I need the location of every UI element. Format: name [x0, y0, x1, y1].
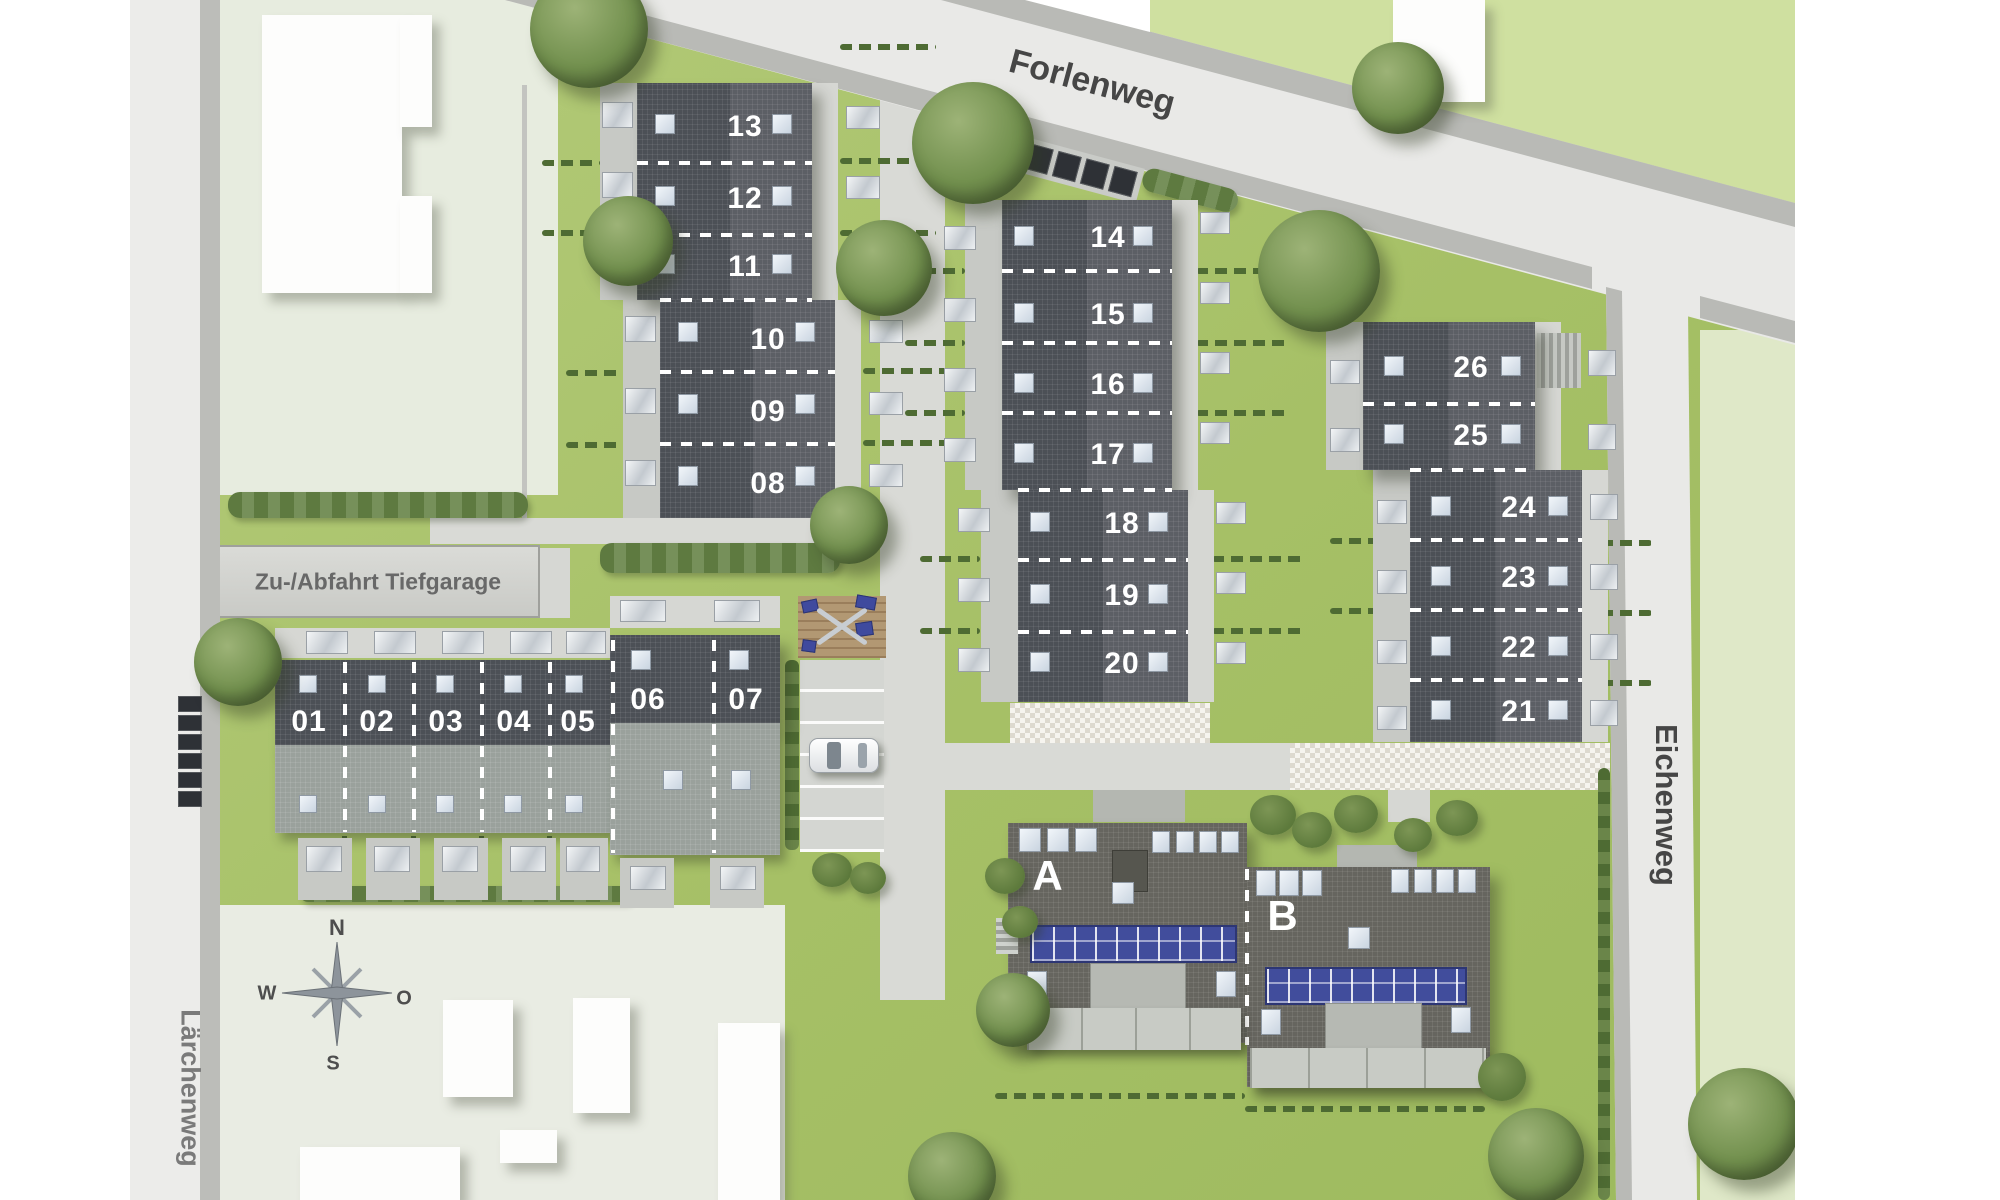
existing-building-nw-wing: [400, 196, 432, 293]
existing-building-sw: [573, 998, 630, 1113]
bush: [812, 853, 852, 887]
paved-path-north-of-road: [1010, 703, 1210, 743]
house-number: 11: [728, 250, 762, 284]
bush: [1334, 795, 1378, 833]
solar-panel-array-a: [1030, 925, 1237, 963]
skylight: [772, 254, 792, 274]
house-number: 02: [359, 705, 394, 739]
house-number: 12: [727, 182, 762, 216]
skylight: [631, 650, 651, 670]
entrance-canopy-a: [1093, 790, 1185, 822]
hedge-row: [920, 628, 980, 634]
site-plan-canvas: 13 12 11 10 09 08 14 15 16 17 18 19 20: [0, 0, 2000, 1200]
unit-divider: [660, 370, 835, 374]
terrace: [510, 846, 546, 872]
skylight: [1014, 303, 1034, 323]
terrace: [566, 846, 600, 872]
skylight: [1548, 496, 1568, 516]
house-number: 22: [1501, 631, 1536, 665]
unit-divider: [1018, 558, 1188, 562]
entrance-pad: [1590, 564, 1618, 590]
entrance-pad: [1588, 350, 1616, 376]
car-rear-window: [858, 743, 867, 768]
balcony-strip-a: [1027, 1008, 1241, 1050]
skylight: [436, 795, 454, 813]
entrance-pad: [1200, 212, 1230, 234]
entry-path-building-b: [1388, 790, 1430, 822]
unit-divider: [412, 662, 416, 832]
unit-divider: [1018, 488, 1172, 492]
entrance-pad: [714, 600, 760, 622]
parked-car: [809, 738, 879, 773]
hedge-row-south-a: [995, 1093, 1245, 1099]
skylight: [655, 114, 675, 134]
skylight: [1019, 828, 1041, 852]
terrace: [1330, 360, 1360, 384]
waste-bin: [178, 715, 202, 731]
skylight: [1133, 226, 1153, 246]
terrace: [944, 438, 976, 462]
house-number: 15: [1090, 298, 1125, 332]
entrance-pad: [510, 631, 552, 654]
skylight: [1075, 828, 1097, 852]
hedge-mid: [600, 543, 840, 573]
terrace: [630, 866, 666, 890]
skylight: [1148, 584, 1168, 604]
waste-bin: [178, 791, 202, 807]
skylight: [1030, 584, 1050, 604]
unit-divider: [548, 662, 552, 832]
skylight: [1451, 1007, 1471, 1033]
unit-divider: [1410, 678, 1582, 682]
skylight: [1548, 700, 1568, 720]
hedge-row: [566, 442, 623, 448]
existing-building-nw: [262, 15, 402, 293]
car-windshield: [827, 742, 841, 769]
skylight: [299, 795, 317, 813]
building-divider: [1245, 869, 1249, 1045]
unit-divider: [1002, 341, 1172, 345]
house-number: 25: [1453, 419, 1488, 453]
unit-divider: [1410, 468, 1535, 472]
balcony-deck: [1537, 333, 1581, 388]
house-number: 21: [1501, 695, 1536, 729]
entrance-pad: [1590, 494, 1618, 520]
entrance-pad: [869, 392, 903, 415]
existing-building-sw: [443, 1000, 513, 1097]
entrance-pad: [1200, 352, 1230, 374]
house-number: 18: [1104, 507, 1139, 541]
hedge-row: [1196, 340, 1291, 346]
terrace: [1377, 570, 1407, 594]
entrance-pad: [1588, 424, 1616, 450]
entrance-pad: [1216, 502, 1246, 524]
skylight: [655, 186, 675, 206]
hedge-row: [542, 160, 600, 166]
bush: [1250, 795, 1296, 835]
terrace: [625, 460, 656, 486]
house-number: 03: [428, 705, 463, 739]
terrace: [625, 316, 656, 342]
house-number: 24: [1501, 491, 1536, 525]
hedge-above-ramp: [228, 492, 528, 518]
access-road-horizontal: [940, 743, 1290, 790]
skylight: [368, 675, 386, 693]
skylight: [1384, 424, 1404, 444]
skylight: [436, 675, 454, 693]
entrance-pad: [1200, 422, 1230, 444]
path-right-of-ramp: [540, 548, 570, 618]
skylight: [729, 650, 749, 670]
playground-deck: [798, 596, 886, 658]
skylight: [1133, 373, 1153, 393]
waste-bin: [178, 734, 202, 750]
skylight: [1152, 831, 1170, 853]
fence-line-west: [522, 85, 527, 518]
parking-stall: [1052, 151, 1082, 182]
skylight: [1014, 373, 1034, 393]
hedge-row: [1212, 628, 1307, 634]
tree: [583, 196, 673, 286]
walkway: [1172, 200, 1198, 490]
bush: [1394, 818, 1432, 852]
entrance-pad: [846, 106, 880, 129]
skylight: [795, 394, 815, 414]
left-margin: [0, 0, 130, 1200]
skylight: [1391, 869, 1409, 893]
skylight: [795, 322, 815, 342]
terrace: [944, 226, 976, 250]
house-number: 08: [750, 467, 785, 501]
tree: [1258, 210, 1380, 332]
skylight: [1030, 652, 1050, 672]
terrace: [720, 866, 756, 890]
skylight: [678, 466, 698, 486]
street-label-eichenweg: Eichenweg: [1648, 724, 1684, 886]
balcony-strip-b: [1250, 1048, 1486, 1088]
terrace: [1377, 500, 1407, 524]
terrace: [442, 846, 478, 872]
walkway: [812, 83, 838, 300]
compass-north-label: N: [329, 915, 345, 941]
building-letter: A: [1032, 852, 1063, 900]
skylight: [731, 770, 751, 790]
bush: [985, 858, 1025, 894]
hedge-row-south-b: [1245, 1106, 1485, 1112]
compass-east-label: O: [396, 988, 412, 1011]
hedge-row: [1212, 556, 1307, 562]
terrace: [944, 368, 976, 392]
skylight: [1221, 831, 1239, 853]
tree: [1688, 1068, 1800, 1180]
terrace: [602, 172, 633, 198]
skylight: [1133, 443, 1153, 463]
terrace: [1377, 706, 1407, 730]
compass-west-label: W: [258, 983, 277, 1006]
terrace: [374, 846, 410, 872]
skylight: [1030, 512, 1050, 532]
house-number: 19: [1104, 579, 1139, 613]
skylight: [1047, 828, 1069, 852]
skylight: [1431, 700, 1451, 720]
terrace: [625, 388, 656, 414]
unit-divider: [343, 662, 347, 832]
skylight: [1414, 869, 1432, 893]
skylight: [1458, 869, 1476, 893]
walkway: [1188, 490, 1214, 702]
house-number: 05: [560, 705, 595, 739]
skylight: [772, 114, 792, 134]
unit-divider: [1363, 402, 1535, 406]
waste-bin: [178, 772, 202, 788]
house-number: 20: [1104, 647, 1139, 681]
parking-stall: [1108, 166, 1138, 197]
tree: [194, 618, 282, 706]
paved-path-east: [1290, 743, 1610, 790]
unit-divider: [1018, 630, 1188, 634]
hedge-row: [1196, 410, 1291, 416]
bush: [850, 862, 886, 894]
house-number: 04: [496, 705, 531, 739]
unit-divider: [1410, 538, 1582, 542]
skylight: [504, 675, 522, 693]
unit-divider: [1410, 608, 1582, 612]
house-number: 09: [750, 395, 785, 429]
terrace: [944, 298, 976, 322]
skylight: [663, 770, 683, 790]
existing-building-sw: [718, 1023, 780, 1200]
playground-seat: [801, 639, 817, 653]
skylight: [368, 795, 386, 813]
skylight: [1501, 424, 1521, 444]
compass-south-label: S: [326, 1053, 339, 1076]
hedge-eichenweg: [1598, 768, 1610, 1200]
entrance-pad: [566, 631, 606, 654]
skylight: [1384, 356, 1404, 376]
house-number: 23: [1501, 561, 1536, 595]
entrance-pad: [869, 464, 903, 487]
unit-divider: [1002, 411, 1172, 415]
existing-building-sw: [500, 1130, 557, 1163]
skylight: [565, 675, 583, 693]
hedge-parking-west: [785, 660, 799, 850]
tree: [836, 220, 932, 316]
entrance-pad: [846, 176, 880, 199]
tree: [1352, 42, 1444, 134]
skylight: [1199, 831, 1217, 853]
entrance-pad: [869, 320, 903, 343]
street-label-laerchenweg: Lärchenweg: [175, 1009, 206, 1167]
tree: [1488, 1108, 1584, 1200]
tree: [810, 486, 888, 564]
terrace: [958, 648, 990, 672]
terrace: [1377, 640, 1407, 664]
house-block-sw-light: [275, 745, 610, 833]
unit-divider: [1002, 269, 1172, 273]
entrance-pad: [1590, 700, 1618, 726]
entrance-pad: [306, 631, 348, 654]
building-letter: B: [1267, 892, 1298, 940]
skylight: [1133, 303, 1153, 323]
terrace: [602, 102, 633, 128]
skylight: [678, 322, 698, 342]
hedge-row: [566, 370, 623, 376]
existing-building-nw-wing: [400, 15, 432, 127]
skylight: [1112, 882, 1134, 904]
skylight: [678, 394, 698, 414]
parking-stall: [1080, 158, 1110, 189]
skylight: [1436, 869, 1454, 893]
skylight: [1431, 636, 1451, 656]
unit-divider: [637, 161, 812, 165]
waste-bin: [178, 696, 202, 712]
skylight: [1348, 927, 1370, 949]
bush: [1292, 812, 1332, 848]
skylight: [1216, 971, 1236, 997]
skylight: [1548, 566, 1568, 586]
skylight: [1431, 496, 1451, 516]
unit-divider: [712, 640, 716, 853]
existing-building-sw: [300, 1147, 460, 1200]
solar-panel-array-b: [1265, 967, 1467, 1005]
entrance-pad: [442, 631, 484, 654]
house-block-sw-head-light: [610, 723, 780, 855]
unit-divider: [660, 298, 812, 302]
house-number: 13: [727, 110, 762, 144]
entrance-pad: [374, 631, 416, 654]
hedge-row: [905, 410, 965, 416]
house-number: 17: [1090, 438, 1125, 472]
skylight: [299, 675, 317, 693]
entrance-pad: [1216, 572, 1246, 594]
house-number: 14: [1090, 221, 1125, 255]
unit-divider: [611, 640, 615, 853]
skylight: [1148, 652, 1168, 672]
waste-bin: [178, 753, 202, 769]
skylight: [795, 466, 815, 486]
house-number: 06: [630, 683, 665, 717]
entrance-pad: [1216, 642, 1246, 664]
house-number: 01: [291, 705, 326, 739]
hedge-row: [840, 44, 936, 50]
entrance-pad: [1590, 634, 1618, 660]
skylight: [1148, 512, 1168, 532]
terrace: [306, 846, 342, 872]
right-margin: [1795, 0, 2000, 1200]
garage-ramp-label: Zu-/Abfahrt Tiefgarage: [255, 569, 501, 596]
terrace: [958, 578, 990, 602]
skylight: [1431, 566, 1451, 586]
house-number: 10: [750, 323, 785, 357]
skylight: [772, 186, 792, 206]
unit-divider: [480, 662, 484, 832]
skylight: [1176, 831, 1194, 853]
skylight: [565, 795, 583, 813]
hedge-row: [905, 340, 965, 346]
entrance-pad: [1200, 282, 1230, 304]
tree: [912, 82, 1034, 204]
tree: [976, 973, 1050, 1047]
hedge-row: [920, 556, 980, 562]
skylight: [1501, 356, 1521, 376]
terrace: [1330, 428, 1360, 452]
unit-divider: [660, 442, 835, 446]
bush: [1478, 1053, 1526, 1101]
skylight: [504, 795, 522, 813]
skylight: [1014, 226, 1034, 246]
house-number: 16: [1090, 368, 1125, 402]
bush: [1436, 800, 1478, 836]
skylight: [1261, 1009, 1281, 1035]
entrance-pad: [620, 600, 666, 622]
house-number: 07: [728, 683, 763, 717]
terrace: [958, 508, 990, 532]
house-number: 26: [1453, 351, 1488, 385]
skylight: [1548, 636, 1568, 656]
skylight: [1014, 443, 1034, 463]
skylight: [1302, 870, 1322, 896]
bush: [1002, 906, 1038, 938]
